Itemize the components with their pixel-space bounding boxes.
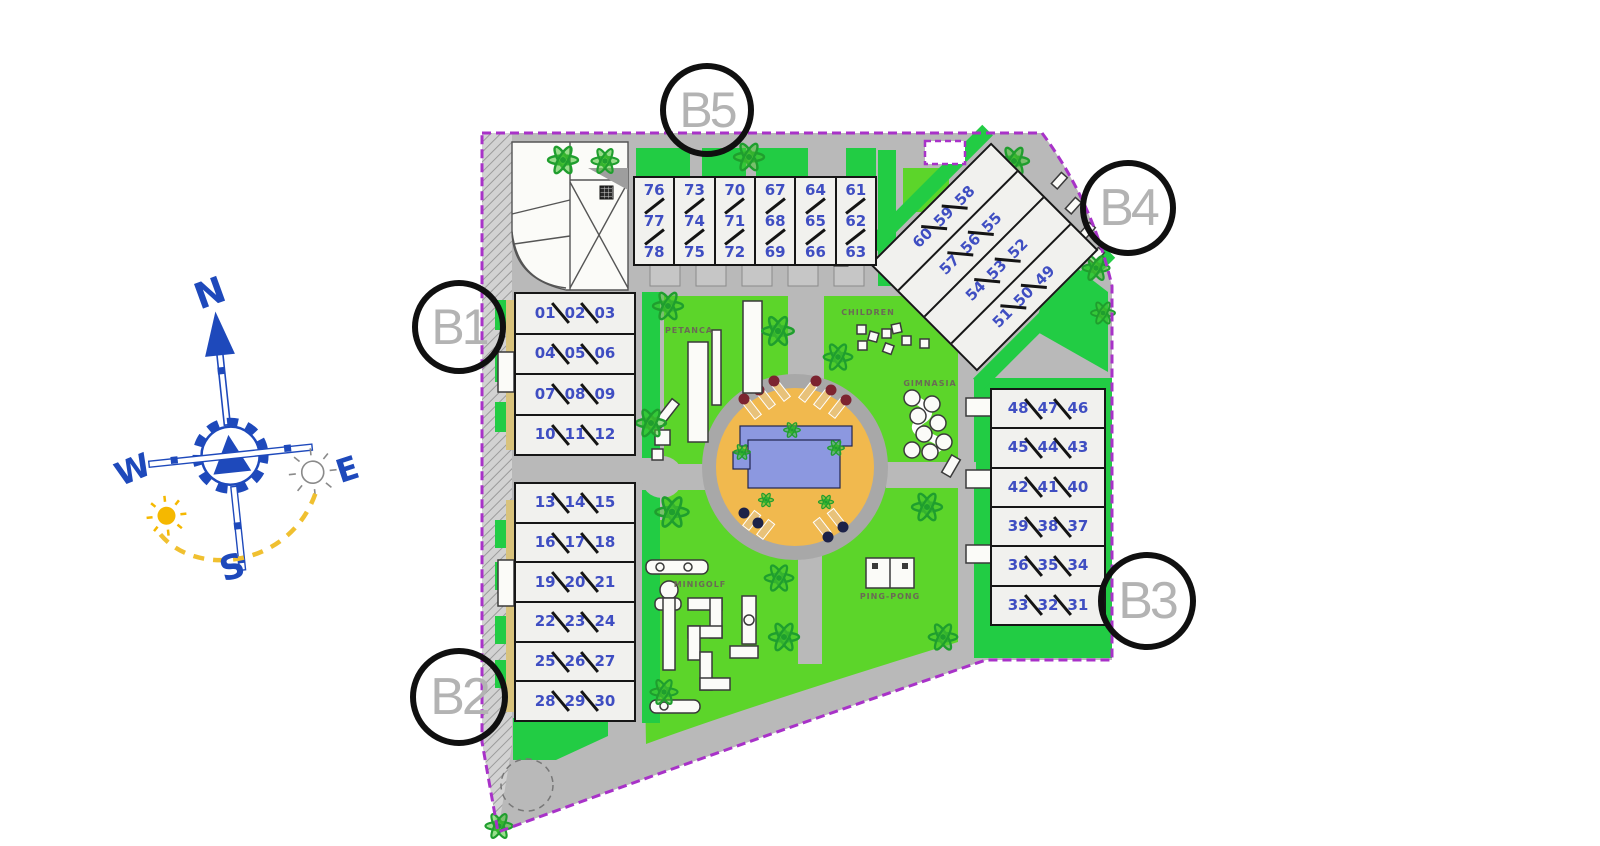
unit-number: 07	[535, 387, 556, 402]
unit-number: 66	[805, 245, 826, 260]
unit-number: 28	[535, 694, 556, 709]
unit-number: 46	[1067, 401, 1088, 416]
unit-row: 333231	[992, 585, 1104, 624]
unit-number: 15	[594, 495, 615, 510]
unit-number: 39	[1008, 519, 1029, 534]
building-b5-units: 767778737475707172676869646566616263	[633, 176, 877, 266]
badge-b2: B2	[410, 648, 508, 746]
unit-number: 06	[594, 346, 615, 361]
unit-row: 131415	[516, 484, 634, 522]
unit-row: 454443	[992, 427, 1104, 466]
unit-number: 61	[845, 183, 866, 198]
unit-number: 76	[644, 183, 665, 198]
minigolf-label: MINIGOLF	[666, 580, 734, 589]
unit-row: 192021	[516, 561, 634, 601]
unit-number: 09	[594, 387, 615, 402]
unit-number: 73	[684, 183, 705, 198]
unit-number: 54	[963, 279, 988, 304]
unit-number: 43	[1067, 440, 1088, 455]
badge-b4-label: B4	[1099, 178, 1157, 238]
site-plan: 010203040506070809101112 131415161718192…	[0, 0, 1600, 846]
unit-number: 63	[845, 245, 866, 260]
unit-number: 72	[724, 245, 745, 260]
building-b3-units: 484746454443424140393837363534333231	[990, 388, 1106, 626]
gimnasia-label: GIMNASIA	[898, 379, 962, 388]
unit-number: 40	[1067, 480, 1088, 495]
unit-row: 282930	[516, 680, 634, 720]
unit-row: 363534	[992, 545, 1104, 584]
pingpong-label: PING-PONG	[858, 592, 922, 601]
unit-number: 25	[535, 654, 556, 669]
compass-n: N	[189, 270, 231, 318]
unit-row: 040506	[516, 333, 634, 374]
compass-w: W	[112, 445, 156, 493]
unit-number: 19	[535, 575, 556, 590]
unit-row: 222324	[516, 601, 634, 641]
building-b1-units: 010203040506070809101112	[514, 292, 636, 456]
unit-number: 31	[1067, 598, 1088, 613]
ping-pong-table	[866, 558, 914, 588]
unit-number: 27	[594, 654, 615, 669]
unit-row: 676869	[754, 178, 794, 264]
unit-number: 13	[535, 495, 556, 510]
unit-row: 252627	[516, 641, 634, 681]
children-label: CHILDREN	[838, 308, 898, 317]
unit-number: 48	[1008, 401, 1029, 416]
unit-number: 21	[594, 575, 615, 590]
unit-number: 34	[1067, 558, 1088, 573]
unit-number: 65	[805, 214, 826, 229]
unit-row: 424140	[992, 467, 1104, 506]
unit-number: 04	[535, 346, 556, 361]
unit-number: 37	[1067, 519, 1088, 534]
unit-number: 68	[765, 214, 786, 229]
unit-number: 42	[1008, 480, 1029, 495]
pool-area	[709, 376, 881, 554]
unit-number: 22	[535, 614, 556, 629]
compass-rose: N W E S	[112, 270, 362, 582]
unit-number: 60	[910, 226, 935, 251]
unit-row: 010203	[516, 294, 634, 333]
unit-number: 57	[937, 252, 962, 277]
unit-number: 62	[845, 214, 866, 229]
unit-number: 78	[644, 245, 665, 260]
unit-number: 64	[805, 183, 826, 198]
unit-number: 77	[644, 214, 665, 229]
badge-b5: B5	[660, 63, 754, 157]
unit-number: 03	[594, 306, 615, 321]
unit-row: 484746	[992, 390, 1104, 427]
unit-number: 16	[535, 535, 556, 550]
unit-number: 33	[1008, 598, 1029, 613]
badge-b5-label: B5	[679, 81, 734, 139]
badge-b3: B3	[1098, 552, 1196, 650]
unit-number: 67	[765, 183, 786, 198]
badge-b3-label: B3	[1118, 571, 1176, 631]
unit-row: 161718	[516, 522, 634, 562]
petanca-label: PETANCA	[654, 326, 724, 335]
unit-number: 36	[1008, 558, 1029, 573]
unit-row: 737475	[673, 178, 713, 264]
unit-row: 616263	[835, 178, 875, 264]
unit-row: 767778	[635, 178, 673, 264]
unit-number: 69	[765, 245, 786, 260]
unit-number: 75	[684, 245, 705, 260]
unit-number: 18	[594, 535, 615, 550]
badge-b4: B4	[1080, 160, 1176, 256]
unit-number: 45	[1008, 440, 1029, 455]
badge-b2-label: B2	[430, 667, 488, 727]
badge-b1-label: B1	[431, 298, 486, 356]
compass-e: E	[331, 448, 362, 491]
gate-marker	[925, 141, 965, 164]
unit-row: 707172	[714, 178, 754, 264]
unit-number: 70	[724, 183, 745, 198]
unit-number: 10	[535, 427, 556, 442]
unit-number: 74	[684, 214, 705, 229]
unit-row: 070809	[516, 373, 634, 414]
building-b2-units: 131415161718192021222324252627282930	[514, 482, 636, 722]
sun-icon	[145, 494, 189, 538]
badge-b1: B1	[412, 280, 506, 374]
unit-number: 71	[724, 214, 745, 229]
unit-row: 101112	[516, 414, 634, 455]
unit-row: 646566	[794, 178, 834, 264]
unit-number: 12	[594, 427, 615, 442]
unit-row: 393837	[992, 506, 1104, 545]
unit-number: 24	[594, 614, 615, 629]
unit-number: 51	[990, 305, 1015, 330]
unit-number: 01	[535, 306, 556, 321]
unit-number: 30	[594, 694, 615, 709]
